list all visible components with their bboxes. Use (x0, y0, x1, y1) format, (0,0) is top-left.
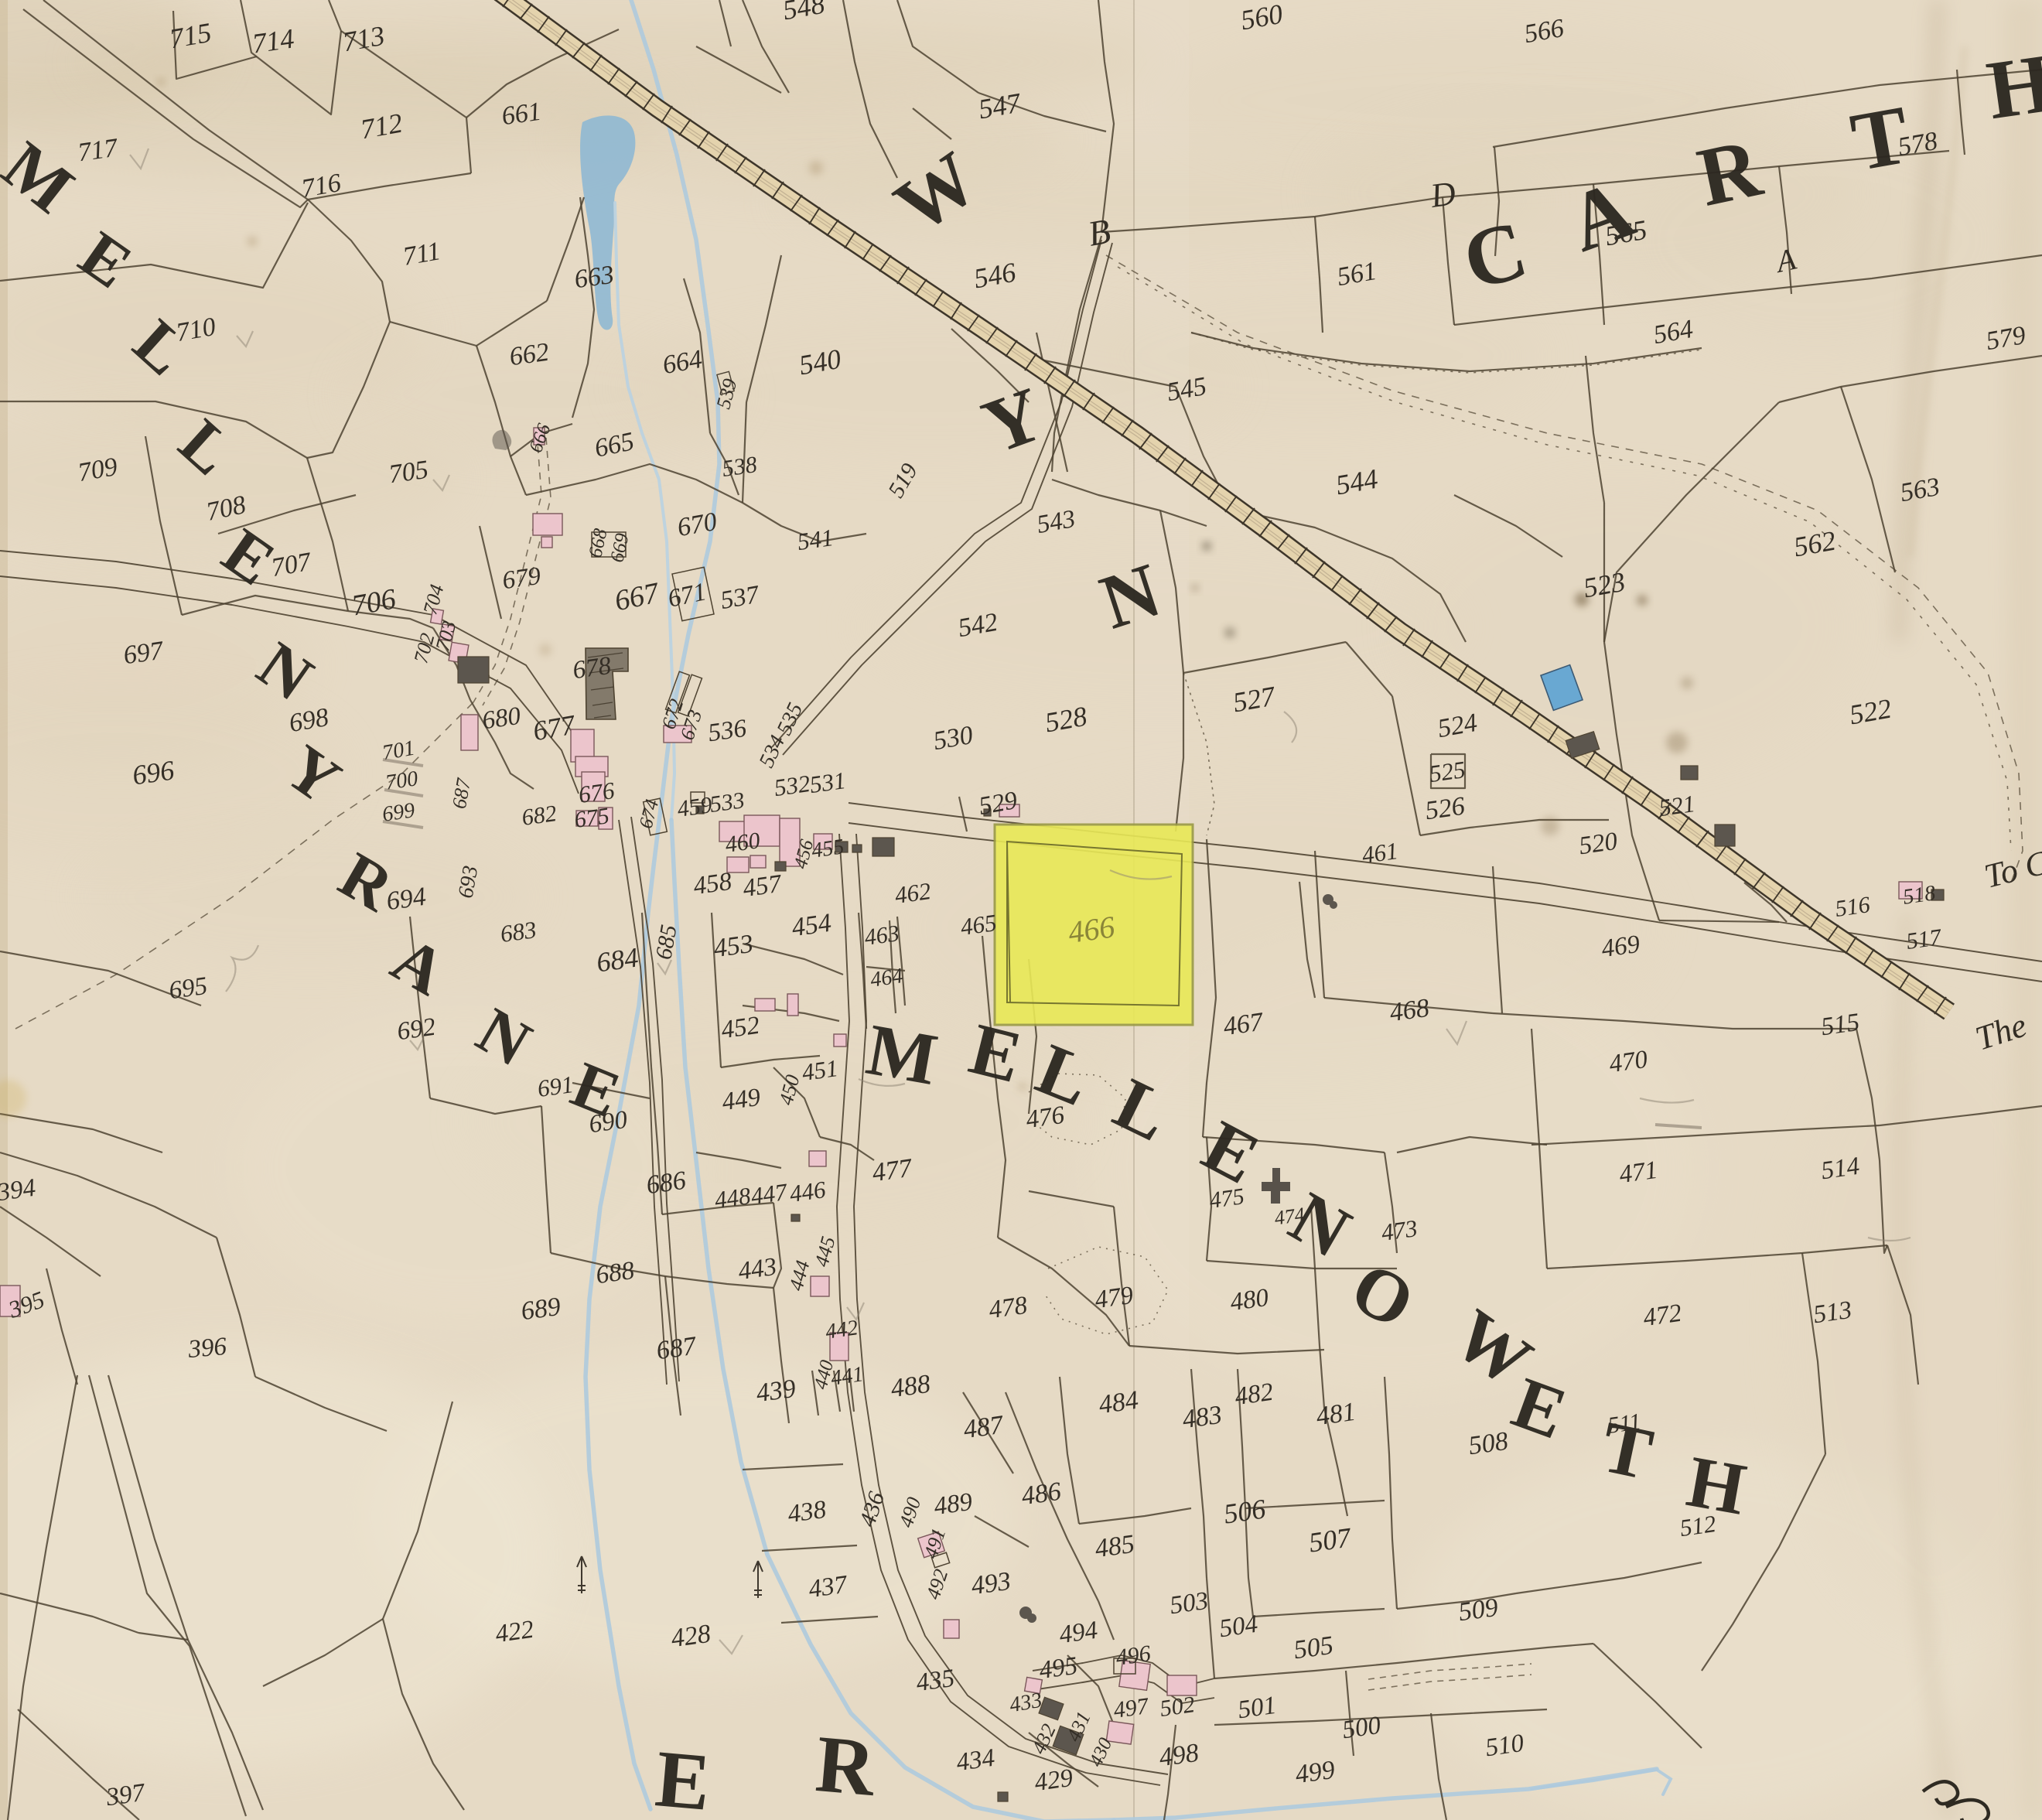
svg-text:682: 682 (520, 801, 558, 831)
svg-text:714: 714 (251, 22, 296, 59)
svg-text:497: 497 (1111, 1693, 1151, 1723)
svg-text:495: 495 (1037, 1652, 1079, 1685)
svg-text:396: 396 (186, 1333, 228, 1364)
svg-text:472: 472 (1641, 1299, 1683, 1333)
svg-text:469: 469 (1600, 930, 1641, 964)
svg-text:661: 661 (500, 97, 543, 131)
svg-text:516: 516 (1833, 892, 1871, 922)
svg-text:663: 663 (572, 261, 616, 295)
svg-text:538: 538 (720, 452, 758, 482)
svg-text:508: 508 (1467, 1427, 1510, 1461)
svg-text:467: 467 (1221, 1007, 1266, 1041)
svg-text:680: 680 (480, 702, 523, 736)
svg-text:473: 473 (1380, 1214, 1419, 1246)
svg-text:447: 447 (750, 1178, 790, 1210)
svg-text:690: 690 (587, 1106, 630, 1139)
svg-text:466: 466 (1066, 909, 1117, 950)
svg-text:465: 465 (959, 909, 999, 941)
svg-text:434: 434 (954, 1744, 996, 1777)
svg-text:688: 688 (594, 1257, 637, 1290)
svg-text:475: 475 (1207, 1183, 1245, 1214)
svg-text:452: 452 (719, 1012, 761, 1045)
svg-text:438: 438 (786, 1496, 828, 1529)
svg-text:483: 483 (1180, 1401, 1224, 1435)
svg-text:512: 512 (1678, 1510, 1718, 1542)
svg-text:439: 439 (754, 1374, 797, 1409)
svg-text:446: 446 (788, 1176, 828, 1207)
svg-text:697: 697 (121, 636, 166, 670)
svg-text:422: 422 (493, 1616, 535, 1649)
svg-text:428: 428 (669, 1620, 712, 1654)
svg-text:E: E (652, 1733, 714, 1820)
svg-text:498: 498 (1157, 1739, 1200, 1773)
svg-text:488: 488 (889, 1370, 932, 1404)
svg-text:695: 695 (167, 972, 209, 1006)
svg-text:692: 692 (395, 1013, 437, 1047)
svg-text:511: 511 (1607, 1409, 1643, 1439)
svg-text:459: 459 (675, 792, 713, 822)
svg-text:478: 478 (987, 1292, 1030, 1325)
svg-text:502: 502 (1158, 1692, 1196, 1722)
svg-text:394: 394 (0, 1174, 37, 1207)
svg-text:683: 683 (499, 916, 538, 948)
svg-text:503: 503 (1168, 1587, 1210, 1620)
svg-text:684: 684 (595, 941, 640, 978)
svg-text:705: 705 (387, 456, 430, 490)
svg-text:536: 536 (706, 715, 749, 748)
svg-text:487: 487 (961, 1410, 1006, 1444)
svg-text:435: 435 (914, 1665, 956, 1698)
svg-text:480: 480 (1228, 1284, 1271, 1317)
svg-text:397: 397 (104, 1779, 148, 1812)
svg-text:493: 493 (969, 1567, 1012, 1601)
svg-text:526: 526 (1423, 792, 1467, 826)
svg-text:513: 513 (1812, 1296, 1853, 1330)
svg-text:442: 442 (824, 1316, 859, 1344)
svg-text:482: 482 (1233, 1378, 1275, 1412)
svg-text:484: 484 (1097, 1386, 1140, 1420)
svg-text:525: 525 (1428, 756, 1467, 787)
svg-text:678: 678 (571, 652, 613, 685)
svg-text:532: 532 (773, 770, 812, 801)
svg-text:M: M (861, 1008, 944, 1101)
svg-text:454: 454 (790, 909, 833, 943)
svg-text:514: 514 (1819, 1152, 1861, 1186)
svg-text:694: 694 (384, 883, 428, 917)
svg-text:D: D (1428, 174, 1458, 215)
svg-text:494: 494 (1057, 1617, 1099, 1650)
svg-text:476: 476 (1024, 1101, 1067, 1135)
svg-text:457: 457 (741, 870, 784, 903)
svg-text:462: 462 (893, 877, 933, 909)
svg-text:468: 468 (1388, 994, 1431, 1028)
svg-text:717: 717 (76, 133, 121, 167)
svg-text:477: 477 (870, 1153, 915, 1187)
svg-text:696: 696 (131, 754, 176, 790)
svg-text:429: 429 (1033, 1764, 1074, 1798)
svg-text:479: 479 (1093, 1282, 1135, 1315)
svg-text:437: 437 (807, 1571, 850, 1604)
svg-text:675: 675 (572, 803, 610, 833)
svg-text:496: 496 (1114, 1641, 1152, 1671)
svg-text:499: 499 (1293, 1756, 1337, 1790)
svg-text:461: 461 (1361, 837, 1400, 869)
svg-text:506: 506 (1222, 1493, 1268, 1529)
svg-text:691: 691 (536, 1070, 575, 1102)
svg-text:679: 679 (500, 562, 542, 596)
svg-text:486: 486 (1019, 1477, 1063, 1511)
svg-text:464: 464 (869, 964, 904, 992)
svg-text:687: 687 (654, 1331, 699, 1365)
svg-text:509: 509 (1456, 1593, 1500, 1627)
svg-text:505: 505 (1292, 1631, 1335, 1665)
svg-text:515: 515 (1819, 1009, 1861, 1042)
svg-text:517: 517 (1904, 924, 1944, 954)
svg-text:500: 500 (1340, 1712, 1383, 1745)
svg-text:507: 507 (1307, 1521, 1354, 1558)
svg-text:463: 463 (862, 920, 900, 951)
svg-text:443: 443 (736, 1253, 778, 1286)
svg-text:676: 676 (577, 777, 616, 808)
svg-text:481: 481 (1314, 1398, 1357, 1432)
svg-text:448: 448 (713, 1182, 753, 1214)
svg-text:686: 686 (644, 1166, 688, 1200)
svg-text:458: 458 (691, 868, 734, 901)
svg-text:474: 474 (1273, 1203, 1306, 1229)
svg-text:460: 460 (723, 828, 761, 858)
svg-text:541: 541 (796, 524, 835, 555)
svg-text:518: 518 (1901, 881, 1937, 910)
svg-text:504: 504 (1217, 1610, 1259, 1644)
svg-text:520: 520 (1577, 828, 1620, 861)
svg-text:451: 451 (801, 1054, 840, 1086)
svg-text:531: 531 (808, 767, 848, 798)
svg-text:449: 449 (720, 1084, 762, 1117)
svg-text:662: 662 (507, 338, 551, 372)
svg-text:533: 533 (708, 787, 746, 818)
svg-text:501: 501 (1236, 1692, 1278, 1725)
svg-text:453: 453 (712, 930, 755, 964)
svg-text:R: R (812, 1718, 879, 1813)
svg-text:489: 489 (932, 1488, 974, 1521)
svg-text:521: 521 (1658, 790, 1697, 821)
svg-text:689: 689 (519, 1292, 562, 1327)
svg-text:470: 470 (1607, 1046, 1650, 1079)
svg-text:485: 485 (1093, 1530, 1136, 1564)
svg-text:471: 471 (1617, 1156, 1659, 1190)
svg-text:510: 510 (1484, 1730, 1526, 1763)
